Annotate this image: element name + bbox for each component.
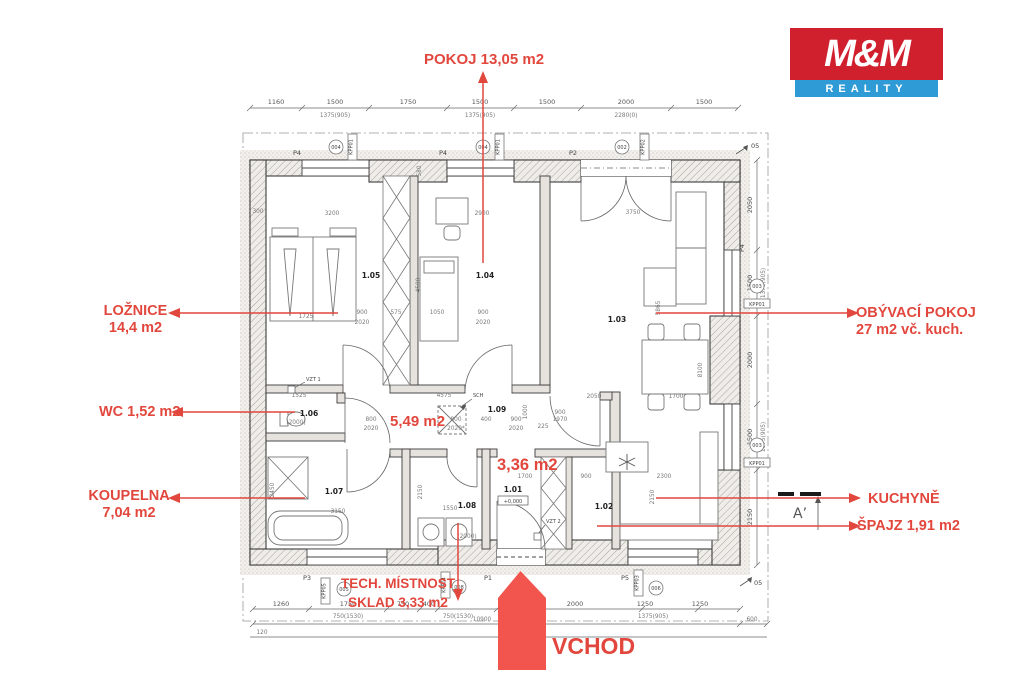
svg-text:KPP02: KPP02: [641, 139, 647, 155]
svg-text:8100: 8100: [698, 362, 704, 377]
svg-text:P3: P3: [303, 574, 311, 582]
svg-text:225: 225: [537, 424, 548, 430]
svg-text:KPP01: KPP01: [496, 139, 502, 155]
svg-text:05: 05: [751, 142, 759, 150]
svg-text:1250: 1250: [692, 600, 709, 608]
svg-text:2280(0): 2280(0): [615, 113, 638, 119]
dims-interior: 3200 2900 3750 1725 900 2020 575 1050 90…: [252, 165, 704, 540]
floor-plan-drawing: 1160 1500 1750 1500 1500 2000 1500 1375(…: [0, 0, 1024, 683]
svg-text:900: 900: [510, 417, 521, 423]
sofa: [644, 192, 706, 306]
door-tech-room: [447, 457, 477, 487]
svg-text:4575: 4575: [437, 393, 452, 399]
svg-text:(2000): (2000): [286, 420, 305, 426]
svg-text:1.05: 1.05: [362, 271, 381, 280]
svg-text:800: 800: [450, 417, 461, 423]
svg-text:900: 900: [356, 310, 367, 316]
svg-text:750(1530): 750(1530): [443, 614, 473, 620]
svg-text:1970: 1970: [553, 417, 568, 423]
svg-text:300: 300: [252, 209, 263, 215]
svg-text:1700: 1700: [518, 474, 533, 480]
label-spajz: ŠPAJZ 1,91 m2: [857, 518, 960, 535]
svg-text:KPP01: KPP01: [349, 139, 355, 155]
mm-reality-logo: M&M REALITY: [790, 28, 943, 97]
label-zadveri-area: 3,36 m2: [497, 457, 558, 474]
label-vchod: VCHOD: [552, 638, 635, 655]
svg-text:002: 002: [617, 145, 627, 151]
svg-text:750(1530): 750(1530): [333, 614, 363, 620]
svg-text:900: 900: [477, 310, 488, 316]
svg-text:P4: P4: [293, 149, 301, 157]
svg-text:900: 900: [580, 474, 591, 480]
svg-text:2000: 2000: [746, 352, 754, 369]
svg-text:006: 006: [651, 586, 661, 592]
bathtub: [268, 511, 348, 545]
svg-text:4500: 4500: [416, 277, 422, 292]
logo-reality-text: REALITY: [795, 80, 938, 97]
svg-text:1500: 1500: [539, 98, 556, 106]
svg-text:2020: 2020: [355, 320, 370, 326]
svg-text:2050: 2050: [746, 197, 754, 214]
svg-text:1500: 1500: [696, 98, 713, 106]
svg-text:1550: 1550: [443, 506, 458, 512]
svg-text:1260: 1260: [273, 600, 290, 608]
svg-text:SCH: SCH: [473, 393, 484, 399]
label-hala-area: 5,49 m2: [390, 413, 445, 430]
svg-text:P2: P2: [569, 149, 577, 157]
label-loznice-name: LOŽNICE: [98, 303, 173, 320]
svg-text:P5: P5: [621, 574, 629, 582]
label-tech-area: SKLAD 3,33 m2: [338, 593, 458, 612]
svg-text:1.03: 1.03: [608, 315, 627, 324]
svg-text:2150: 2150: [650, 489, 656, 504]
entrance-arrow: [498, 571, 546, 670]
svg-text:800: 800: [365, 417, 376, 423]
svg-text:P4: P4: [738, 244, 746, 252]
svg-text:(2000): (2000): [457, 534, 476, 540]
svg-text:1725: 1725: [299, 314, 314, 320]
bed-single: [420, 198, 468, 341]
svg-text:2150: 2150: [746, 509, 754, 526]
svg-text:VZT 2: VZT 2: [546, 519, 561, 525]
svg-text:P4: P4: [439, 149, 447, 157]
svg-text:1375(905): 1375(905): [465, 113, 495, 119]
svg-text:900: 900: [554, 410, 565, 416]
svg-text:2020: 2020: [476, 320, 491, 326]
svg-text:1750: 1750: [400, 98, 417, 106]
svg-text:2900: 2900: [475, 211, 490, 217]
door-bathroom: [347, 449, 390, 492]
svg-text:1000: 1000: [523, 404, 529, 419]
label-loznice: LOŽNICE 14,4 m2: [98, 303, 173, 337]
svg-text:1500: 1500: [472, 98, 489, 106]
svg-text:P1: P1: [484, 574, 492, 582]
door-room104: [465, 345, 512, 392]
svg-text:2020*: 2020*: [447, 426, 465, 432]
label-koupelna-area: 7,04 m2: [88, 505, 170, 522]
label-wc: WC 1,52 m2: [99, 404, 180, 421]
svg-text:1375(905): 1375(905): [638, 614, 668, 620]
svg-text:1250: 1250: [637, 600, 654, 608]
svg-text:1.09: 1.09: [488, 405, 507, 414]
svg-text:1500: 1500: [327, 98, 344, 106]
label-kuchyne: KUCHYNĚ: [868, 491, 940, 508]
svg-text:004: 004: [331, 145, 341, 151]
svg-text:003: 003: [752, 284, 762, 290]
svg-text:1.02: 1.02: [595, 502, 614, 511]
svg-text:10900: 10900: [473, 617, 492, 623]
svg-text:KPP01: KPP01: [749, 302, 765, 308]
svg-text:3150: 3150: [331, 509, 346, 515]
svg-text:1050: 1050: [430, 310, 445, 316]
svg-text:2050: 2050: [587, 394, 602, 400]
svg-text:1375(905): 1375(905): [320, 113, 350, 119]
door-entrance: [497, 501, 545, 549]
svg-text:3200: 3200: [325, 211, 340, 217]
label-tech-name: TECH. MÍSTNOST: [338, 574, 458, 593]
svg-text:2300: 2300: [657, 474, 672, 480]
label-loznice-area: 14,4 m2: [98, 320, 173, 337]
label-koupelna-name: KOUPELNA: [88, 488, 170, 505]
svg-text:KPP01: KPP01: [749, 461, 765, 467]
svg-text:2450: 2450: [270, 482, 276, 497]
svg-text:A’: A’: [793, 506, 807, 522]
marker-o5-bottom: 05: [740, 577, 762, 587]
dims-top: 1160 1500 1750 1500 1500 2000 1500 1375(…: [268, 98, 713, 119]
svg-text:1.04: 1.04: [476, 271, 495, 280]
svg-text:2150: 2150: [418, 484, 424, 499]
floor-plan-page: 1160 1500 1750 1500 1500 2000 1500 1375(…: [0, 0, 1024, 683]
svg-text:120: 120: [256, 630, 267, 636]
label-tech-mistnost: TECH. MÍSTNOST SKLAD 3,33 m2: [338, 574, 458, 612]
svg-text:1525: 1525: [292, 393, 307, 399]
svg-text:2020: 2020: [509, 426, 524, 432]
svg-text:1.06: 1.06: [300, 409, 319, 418]
svg-text:KPP03: KPP03: [635, 575, 641, 591]
svg-text:1.01: 1.01: [504, 485, 523, 494]
svg-text:1160: 1160: [268, 98, 285, 106]
svg-text:003: 003: [752, 443, 762, 449]
logo-mm-text: M&M: [790, 28, 943, 80]
svg-text:VZT 1: VZT 1: [306, 377, 321, 383]
label-koupelna: KOUPELNA 7,04 m2: [88, 488, 170, 522]
svg-text:05: 05: [754, 579, 762, 587]
svg-text:1.07: 1.07: [325, 487, 344, 496]
svg-text:575: 575: [390, 310, 401, 316]
interior-walls: [266, 176, 620, 549]
svg-text:2000: 2000: [567, 600, 584, 608]
label-obyvaci-area: 27 m2 vč. kuch.: [856, 322, 976, 339]
svg-text:KPP05: KPP05: [322, 583, 328, 599]
label-obyvaci-pokoj: OBÝVACÍ POKOJ 27 m2 vč. kuch.: [856, 305, 976, 339]
svg-text:400: 400: [480, 417, 491, 423]
bed-double: [270, 228, 356, 321]
svg-text:2020: 2020: [364, 426, 379, 432]
svg-text:3750: 3750: [626, 210, 641, 216]
kitchen-counter: [606, 432, 718, 540]
svg-text:600: 600: [746, 617, 757, 623]
svg-text:2000: 2000: [618, 98, 635, 106]
label-obyvaci-name: OBÝVACÍ POKOJ: [856, 305, 976, 322]
svg-text:580: 580: [417, 165, 423, 176]
svg-text:1700: 1700: [669, 394, 684, 400]
label-pokoj: POKOJ 13,05 m2: [424, 51, 536, 68]
svg-text:+0,000: +0,000: [504, 499, 523, 505]
svg-text:1.08: 1.08: [458, 501, 477, 510]
